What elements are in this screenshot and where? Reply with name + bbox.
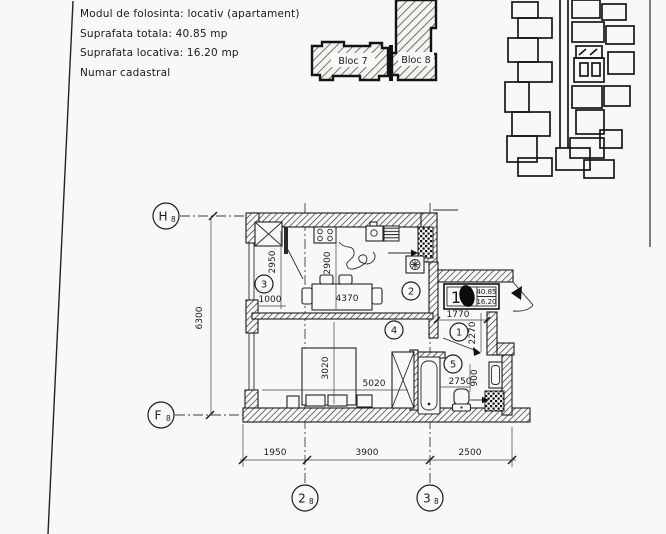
dim-2900: 2900 (323, 251, 333, 274)
boundary-line (48, 1, 73, 534)
grid-sub-2: 8 (309, 497, 314, 506)
counter-symbol (384, 226, 399, 241)
vent-shaft-block (418, 227, 433, 258)
living-furniture (287, 348, 414, 408)
grid-label-2: 2 (298, 492, 306, 506)
bathtub-symbol (418, 357, 440, 414)
entry-door-arrow-icon (511, 286, 522, 300)
table-symbol (302, 275, 382, 310)
pen-scribble (339, 242, 375, 269)
floor-plan: 1 40.85 16.20 3 2 4 1 5 (148, 203, 533, 511)
window-left-lower (249, 333, 254, 390)
dim-3900: 3900 (356, 448, 379, 458)
vent-arrow-icon (411, 250, 418, 257)
dim-1000: 1000 (259, 295, 282, 305)
dim-1770: 1770 (447, 310, 470, 320)
toilet-symbol (453, 389, 471, 411)
dim-1950: 1950 (264, 448, 287, 458)
dimensions: 1950 3900 2500 6300 2950 1000 2900 4370 … (195, 217, 516, 467)
dim-2750: 2750 (449, 377, 472, 387)
grid-lines (175, 203, 458, 484)
door-arrow-bath (473, 347, 481, 356)
grid-sub-H: 8 (171, 215, 176, 224)
partition-room3 (284, 227, 288, 254)
vent-symbol (406, 256, 424, 273)
room-label-5: 5 (450, 360, 456, 371)
grid-label-F: F (155, 409, 162, 423)
dim-5020: 5020 (363, 379, 386, 389)
dim-6300: 6300 (195, 306, 205, 329)
wall-kitchen-living (252, 313, 433, 319)
cadastral-document-page: Modul de folosinta: locativ (apartament)… (0, 0, 666, 534)
room-label-3: 3 (261, 280, 267, 291)
room-label-1: 1 (456, 328, 462, 339)
grid-label-H: H (158, 210, 167, 224)
tag-living-area: 16.20 (476, 298, 496, 306)
site-mini-plan: Bloc 7 Bloc 8 (312, 0, 436, 81)
stove-symbol (314, 227, 336, 243)
grid-sub-3: 8 (434, 497, 439, 506)
wall-vestibule-top (437, 270, 513, 282)
dim-2950: 2950 (268, 250, 278, 273)
wardrobe-symbol (392, 352, 414, 408)
apartment-tag-box: 1 40.85 16.20 (444, 284, 499, 309)
dim-2500: 2500 (459, 448, 482, 458)
closet-symbol (255, 222, 282, 246)
wall-hall-left (429, 262, 438, 338)
grid-label-3: 3 (423, 492, 431, 506)
washbasin-symbol (489, 362, 502, 388)
tag-unit-number: 1 (451, 288, 461, 307)
dim-3020: 3020 (321, 356, 331, 379)
wall-right-step (497, 343, 514, 355)
dim-2270: 2270 (468, 321, 478, 344)
tag-total-area: 40.85 (476, 288, 496, 296)
grid-sub-F: 8 (166, 414, 171, 423)
plan-drawing: Bloc 7 Bloc 8 (0, 0, 666, 534)
grid-marker-F8: F 8 (148, 402, 174, 428)
grid-marker-2B: 2 8 (292, 485, 318, 511)
room-label-2: 2 (408, 287, 414, 298)
nightstand-left (287, 396, 299, 408)
shower-tray-symbol (485, 391, 504, 411)
bloc8-label: Bloc 8 (401, 55, 430, 66)
entry-door-swing-arc (513, 305, 533, 311)
nightstand-right (357, 395, 372, 407)
room-label-4: 4 (391, 326, 397, 337)
grid-marker-H8: H 8 (153, 203, 179, 229)
bloc8-footprint (392, 0, 436, 80)
dim-900: 900 (470, 369, 480, 386)
door-leaf-room3 (288, 250, 303, 279)
cadastral-map (505, 0, 650, 247)
bloc7-label: Bloc 7 (338, 56, 367, 67)
window-left-upper (249, 243, 254, 300)
grid-marker-3B: 3 8 (417, 485, 443, 511)
dim-4370: 4370 (336, 294, 359, 304)
